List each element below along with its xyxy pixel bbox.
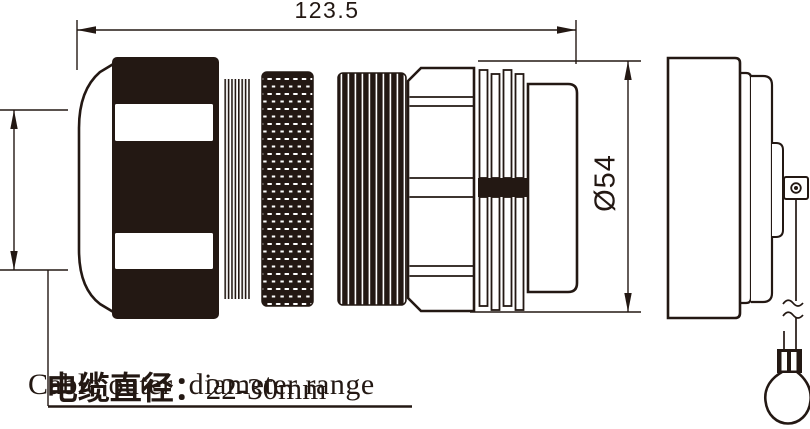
crimp-sleeve-slot-left [782, 352, 788, 371]
gland-nut-slot-upper [115, 104, 213, 141]
knurled-coupling-ring [338, 73, 406, 305]
rear-thread-section [224, 79, 250, 299]
lanyard-loop [765, 372, 810, 424]
overall-length-dimension-label: 123.5 [267, 0, 387, 24]
cable-gland-dome [79, 63, 115, 313]
dust-cap-boss [772, 143, 783, 237]
dust-cap-body [668, 58, 740, 318]
cable-diameter-note-en: Cable outer diameter range [28, 367, 375, 403]
dust-cap-collar [751, 76, 772, 302]
front-barrel [528, 84, 577, 292]
lanyard-wire [783, 199, 803, 349]
shell-hex-body [408, 68, 474, 311]
gland-nut-slot-lower [115, 233, 213, 269]
crimp-sleeve-slot-right [791, 352, 797, 371]
dust-cap-step [740, 73, 751, 303]
cable-diameter-note-cn-line: 电缆直径：22-30mm [28, 331, 326, 369]
connector-technical-drawing: 123.5 Ø54 电缆直径：22-30mm Cable outer diame… [0, 0, 810, 429]
knurled-ring-rear [262, 72, 313, 306]
lanyard-pin-center [794, 186, 798, 190]
diameter-dimension-label: Ø54 [590, 154, 623, 212]
seal-groove-band [478, 178, 528, 197]
cable-gland-nut [112, 57, 219, 319]
lanyard-crimp-sleeve [777, 349, 802, 373]
